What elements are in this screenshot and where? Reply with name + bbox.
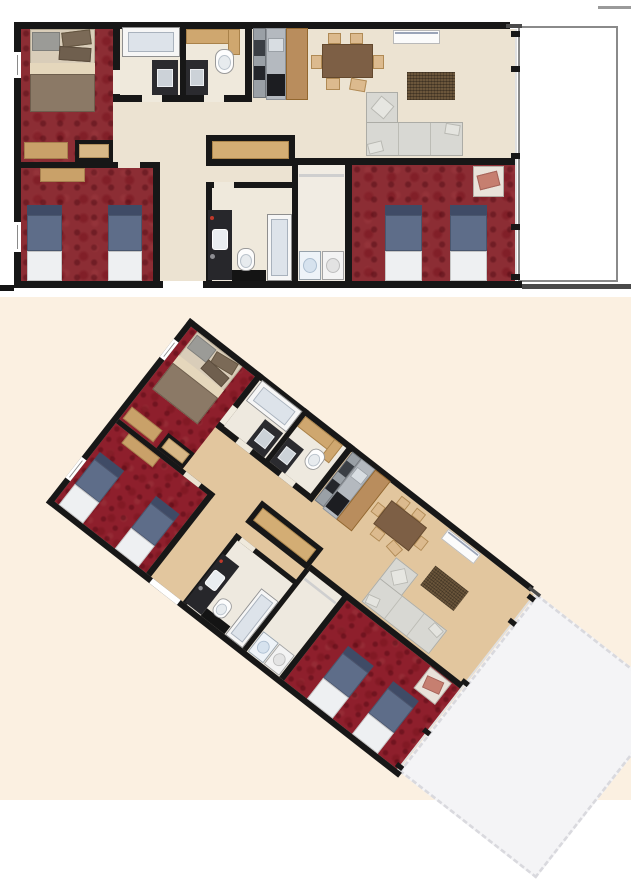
dining-chair-right[interactable] [373,55,384,69]
bathroom2-counter-black[interactable] [232,270,266,281]
bathtub-2-basin [271,219,288,276]
bedroom2-desk[interactable] [40,168,85,182]
dining-chair-top-2[interactable] [350,33,363,44]
bathtub-1-basin [128,32,174,52]
terrace[interactable] [518,26,618,282]
master-bed-sheet [30,63,95,74]
bedroom3-bed2[interactable] [450,215,487,251]
bedroom3-bed1[interactable] [385,215,422,251]
laundry-shelf [299,174,344,177]
floor-plan-2d[interactable] [14,22,522,288]
glass-wall-post-1 [511,31,520,37]
bedroom2-bed2-head [108,205,142,215]
dining-chair-bottom-1[interactable] [326,78,340,90]
wall-outer-bottom[interactable] [14,281,522,288]
master-door-gap [113,70,120,94]
toilet-2-seat [240,254,252,268]
bedroom3-bed2-blanket [450,251,487,281]
kitchen-tall-cabinet[interactable] [253,28,266,98]
wall-bathroom2-laundry-divider[interactable] [292,165,298,281]
baseline-right-bar [522,284,631,289]
entrance-door-gap[interactable] [163,281,203,288]
bedroom3-bed2-head [450,205,487,215]
baseline-left-stub [0,285,14,291]
dining-chair-left[interactable] [311,55,322,69]
wall-outer-top-gray-end [506,24,522,28]
dining-chair-bottom-2[interactable] [349,78,367,93]
bedroom2-bed1-head [27,205,62,215]
sink-bathroom2 [212,229,228,250]
hall-wardrobe-shelf[interactable] [212,141,289,159]
master-bed-pillow-brown-2 [59,46,92,62]
glass-wall-post-5 [511,274,520,280]
toilet-1-seat [218,55,231,70]
washer-door [303,258,317,273]
sofa-seam-1 [398,123,399,155]
sink-bathroom1 [157,69,173,87]
bedroom2-bed1-blanket [27,251,62,281]
bedroom2-bed2-blanket [108,251,142,281]
bedroom3-bed1-blanket [385,251,422,281]
bedroom2-door-gap [118,162,140,168]
kitchen-appliance-lower [254,66,265,80]
wall-wc-kitchen-divider[interactable] [245,22,252,102]
vanity-bathroom2-knob-red [210,216,214,220]
sofa-seam-2 [430,123,431,155]
glass-wall-post-4 [511,224,520,230]
bathroom2-door-gap [214,182,234,188]
glass-wall-post-3 [511,153,520,159]
closet-master-shelf[interactable] [79,144,109,158]
bedroom3-bed1-head [385,205,422,215]
dryer-door [326,258,340,273]
dining-table[interactable] [322,44,373,78]
living-rug[interactable] [407,72,455,100]
top-right-artifact-line [598,6,631,9]
kitchen-island-wood[interactable] [286,28,308,100]
kitchen-sink [268,38,284,52]
sofa-pillow-right [444,123,461,136]
wall-bedroom2-east[interactable] [153,162,160,281]
wall-bedroom3-west[interactable] [345,162,352,281]
master-bed-pillow-gray [32,32,60,51]
wc-door-gap [204,95,224,102]
bedroom2-bed2[interactable] [108,215,142,251]
sink-wc [190,69,204,86]
kitchen-cooktop [267,74,285,96]
window-bedroom2-pane [17,225,18,249]
dining-chair-top-1[interactable] [328,33,341,44]
wall-bath-corridor[interactable] [113,95,252,102]
bathroom1-door-gap [142,95,162,102]
kitchen-appliance-upper [254,40,265,56]
vanity-bathroom2-knob-gray [210,254,215,259]
window-master-pane [17,55,18,75]
sideboard-white-accent [395,32,438,34]
sofa-pillow-diamond [390,568,408,586]
master-dresser[interactable] [24,142,68,159]
wall-livingroom-south[interactable] [295,158,515,165]
master-bed-duvet [30,74,95,112]
glass-wall-post-2 [511,66,520,72]
bedroom2-bed1[interactable] [27,215,62,251]
